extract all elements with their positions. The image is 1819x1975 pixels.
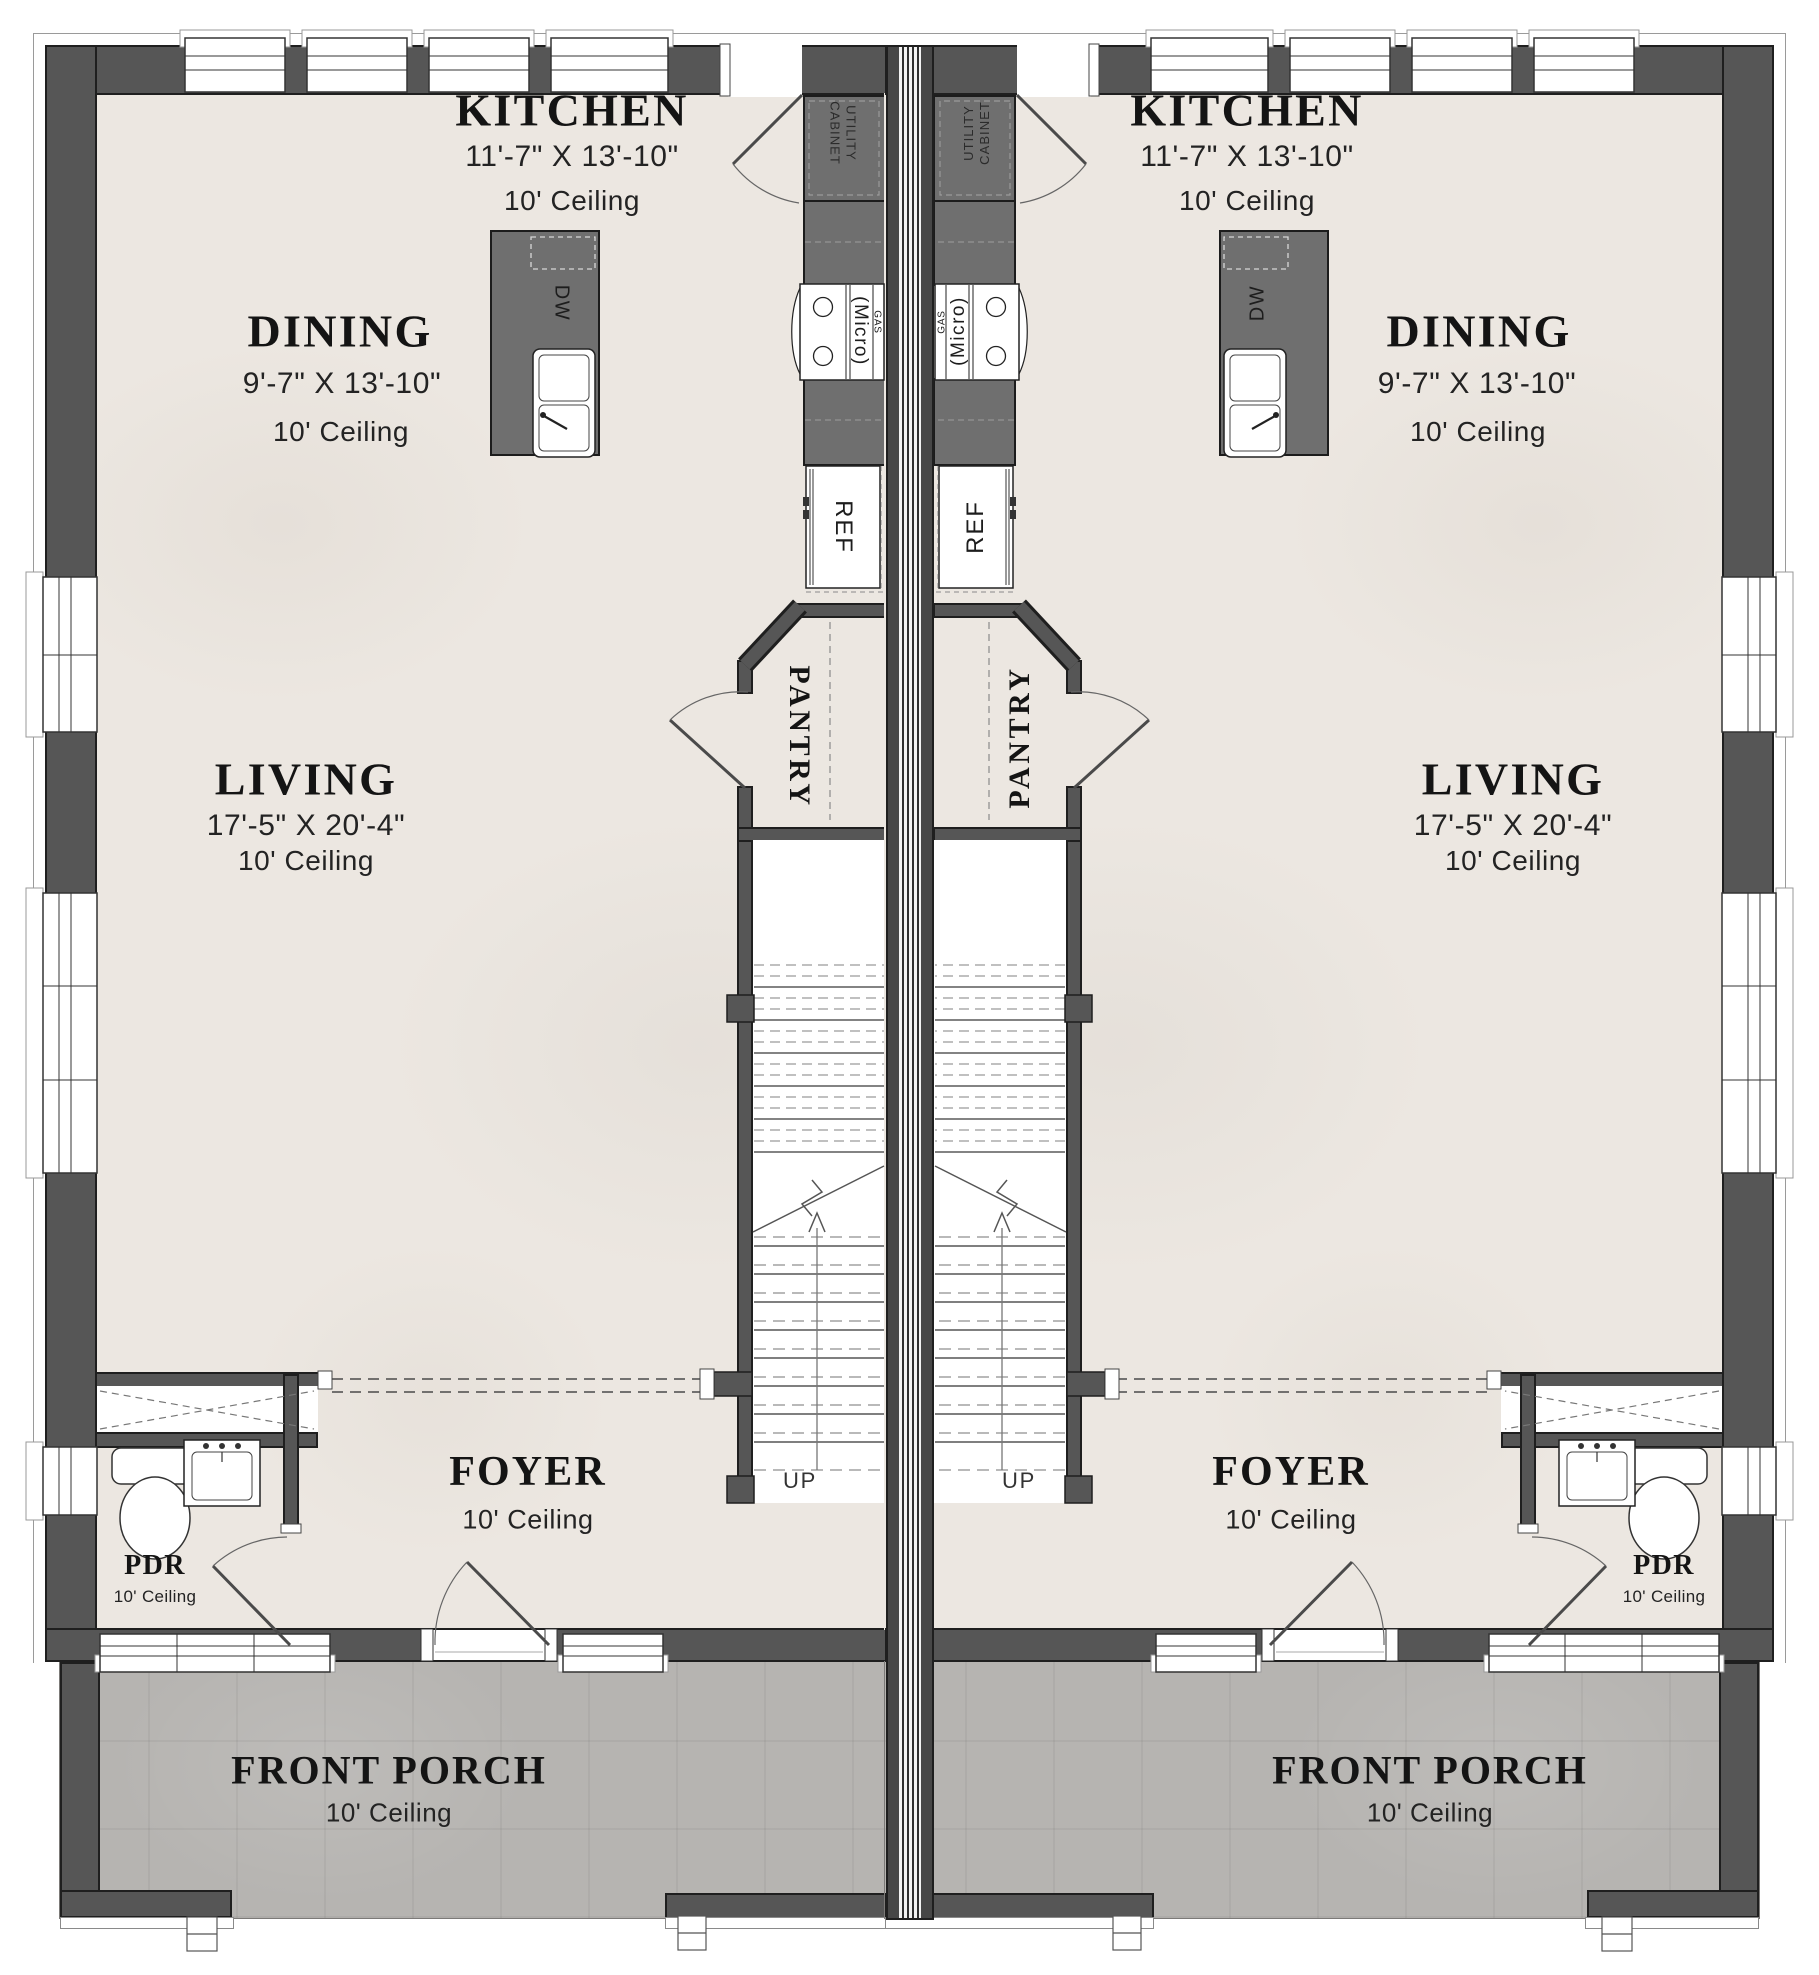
- pantry-jamb: [1066, 660, 1082, 694]
- utility-cabinet: [933, 95, 1016, 202]
- porch-rail-sill: [1585, 1917, 1759, 1929]
- porch-side-rim: [1719, 1662, 1759, 1918]
- duplex-floor-plan: KITCHEN 11'-7" X 13'-10" 10' Ceiling DIN…: [0, 0, 1819, 1975]
- pdr-wall-right: [1520, 1374, 1536, 1532]
- porch-rail: [1587, 1890, 1759, 1918]
- wall-side: [1722, 45, 1774, 1662]
- stair-wall: [1066, 840, 1082, 1503]
- porch-floor: [885, 1662, 1759, 1918]
- kitchen-counter: [933, 378, 1016, 466]
- kitchen-counter: [933, 200, 1016, 286]
- wall-front: [885, 1628, 1774, 1662]
- wall-top: [885, 45, 1774, 95]
- pantry-wall-top: [933, 603, 1022, 618]
- pdr-wall-right-stub: [1520, 1640, 1536, 1662]
- party-wall-stripes: [899, 47, 921, 1918]
- party-wall: [886, 45, 934, 1920]
- kitchen-island: [1219, 230, 1329, 456]
- stairwell: [933, 840, 1066, 1503]
- pantry-jamb-lower: [1066, 786, 1082, 830]
